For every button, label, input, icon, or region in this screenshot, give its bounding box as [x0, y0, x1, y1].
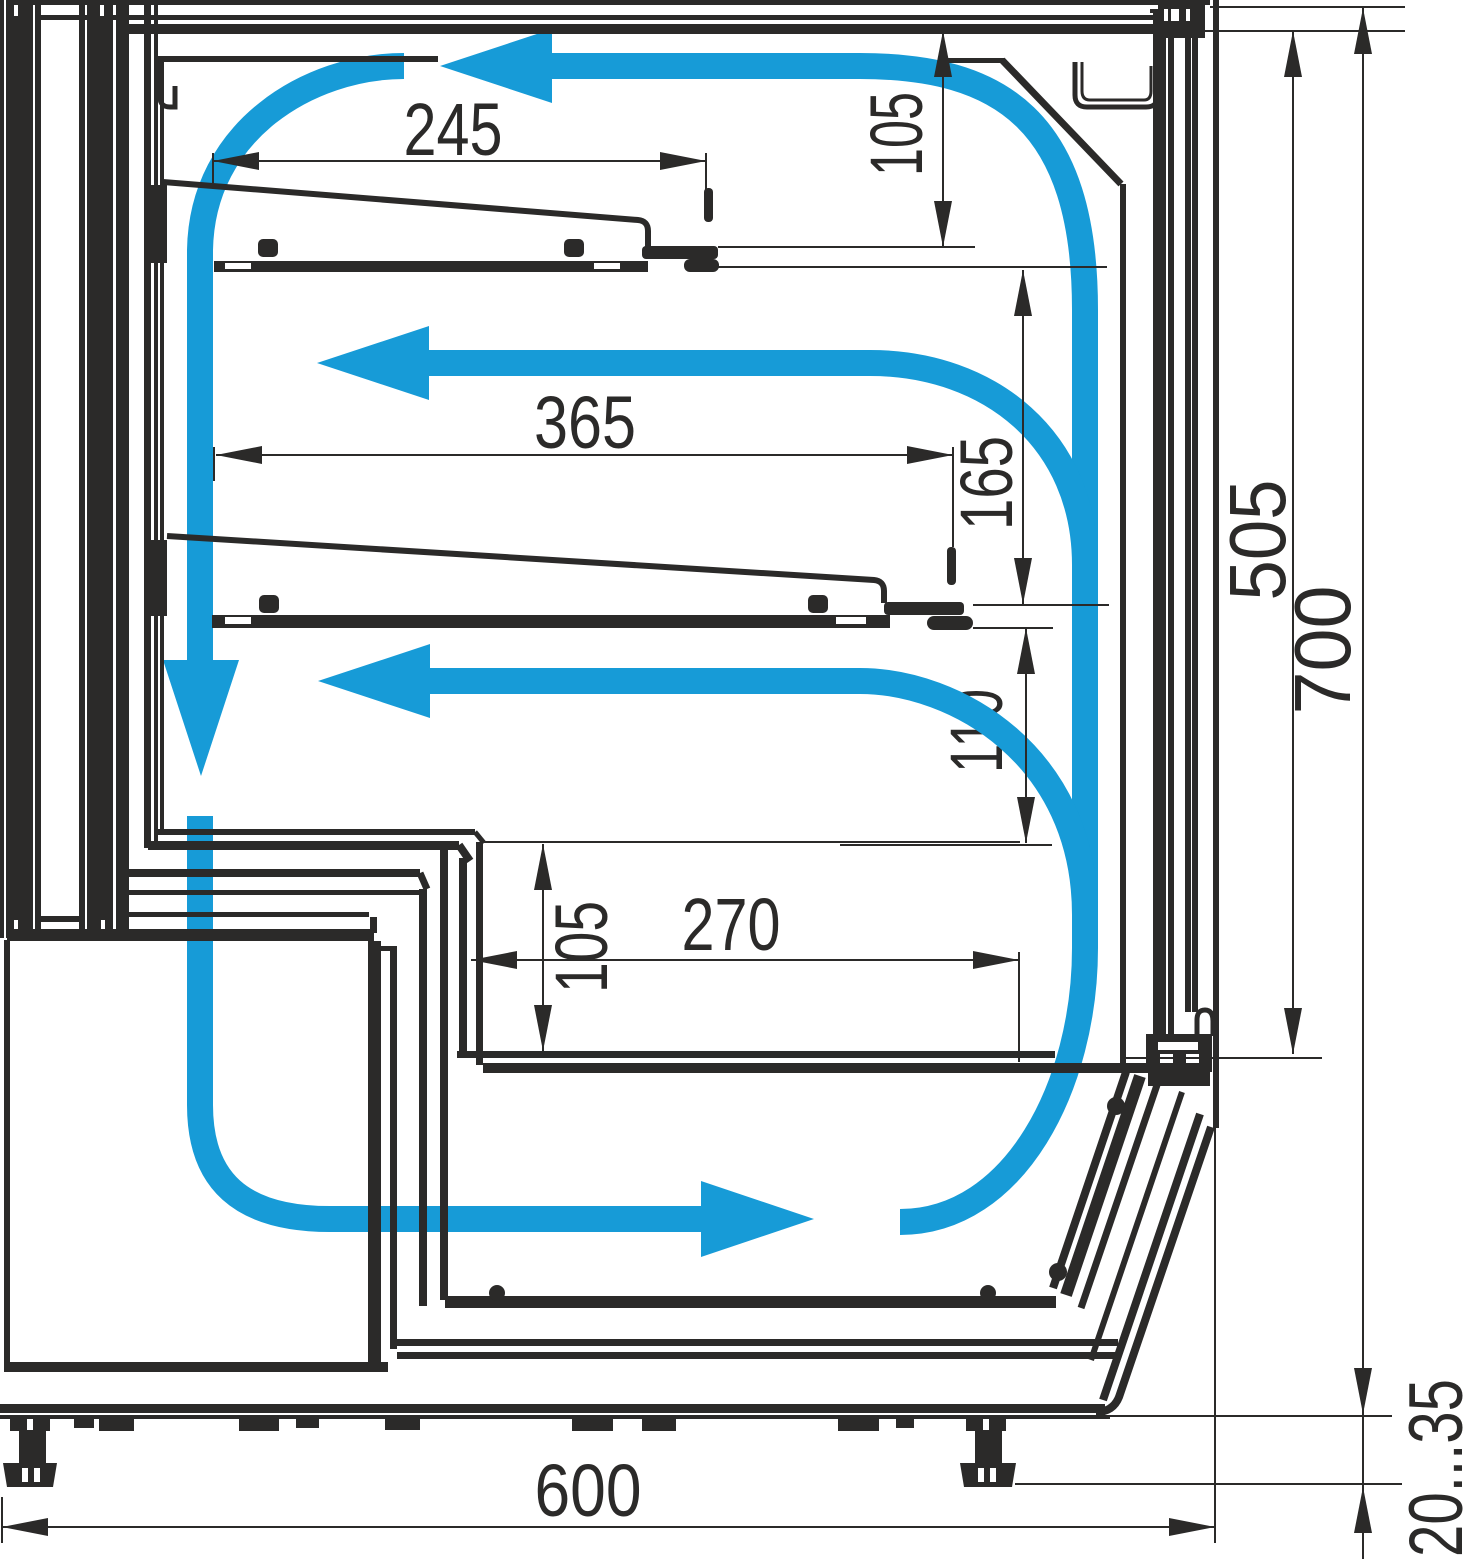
- svg-text:505: 505: [1213, 480, 1302, 601]
- svg-text:165: 165: [945, 436, 1028, 530]
- svg-text:600: 600: [535, 1449, 642, 1532]
- svg-text:105: 105: [855, 92, 938, 176]
- svg-text:105: 105: [540, 901, 623, 993]
- svg-text:365: 365: [534, 381, 636, 464]
- svg-text:700: 700: [1278, 586, 1367, 715]
- svg-text:245: 245: [404, 88, 503, 171]
- svg-text:20...35: 20...35: [1394, 1379, 1468, 1557]
- svg-text:270: 270: [682, 883, 781, 966]
